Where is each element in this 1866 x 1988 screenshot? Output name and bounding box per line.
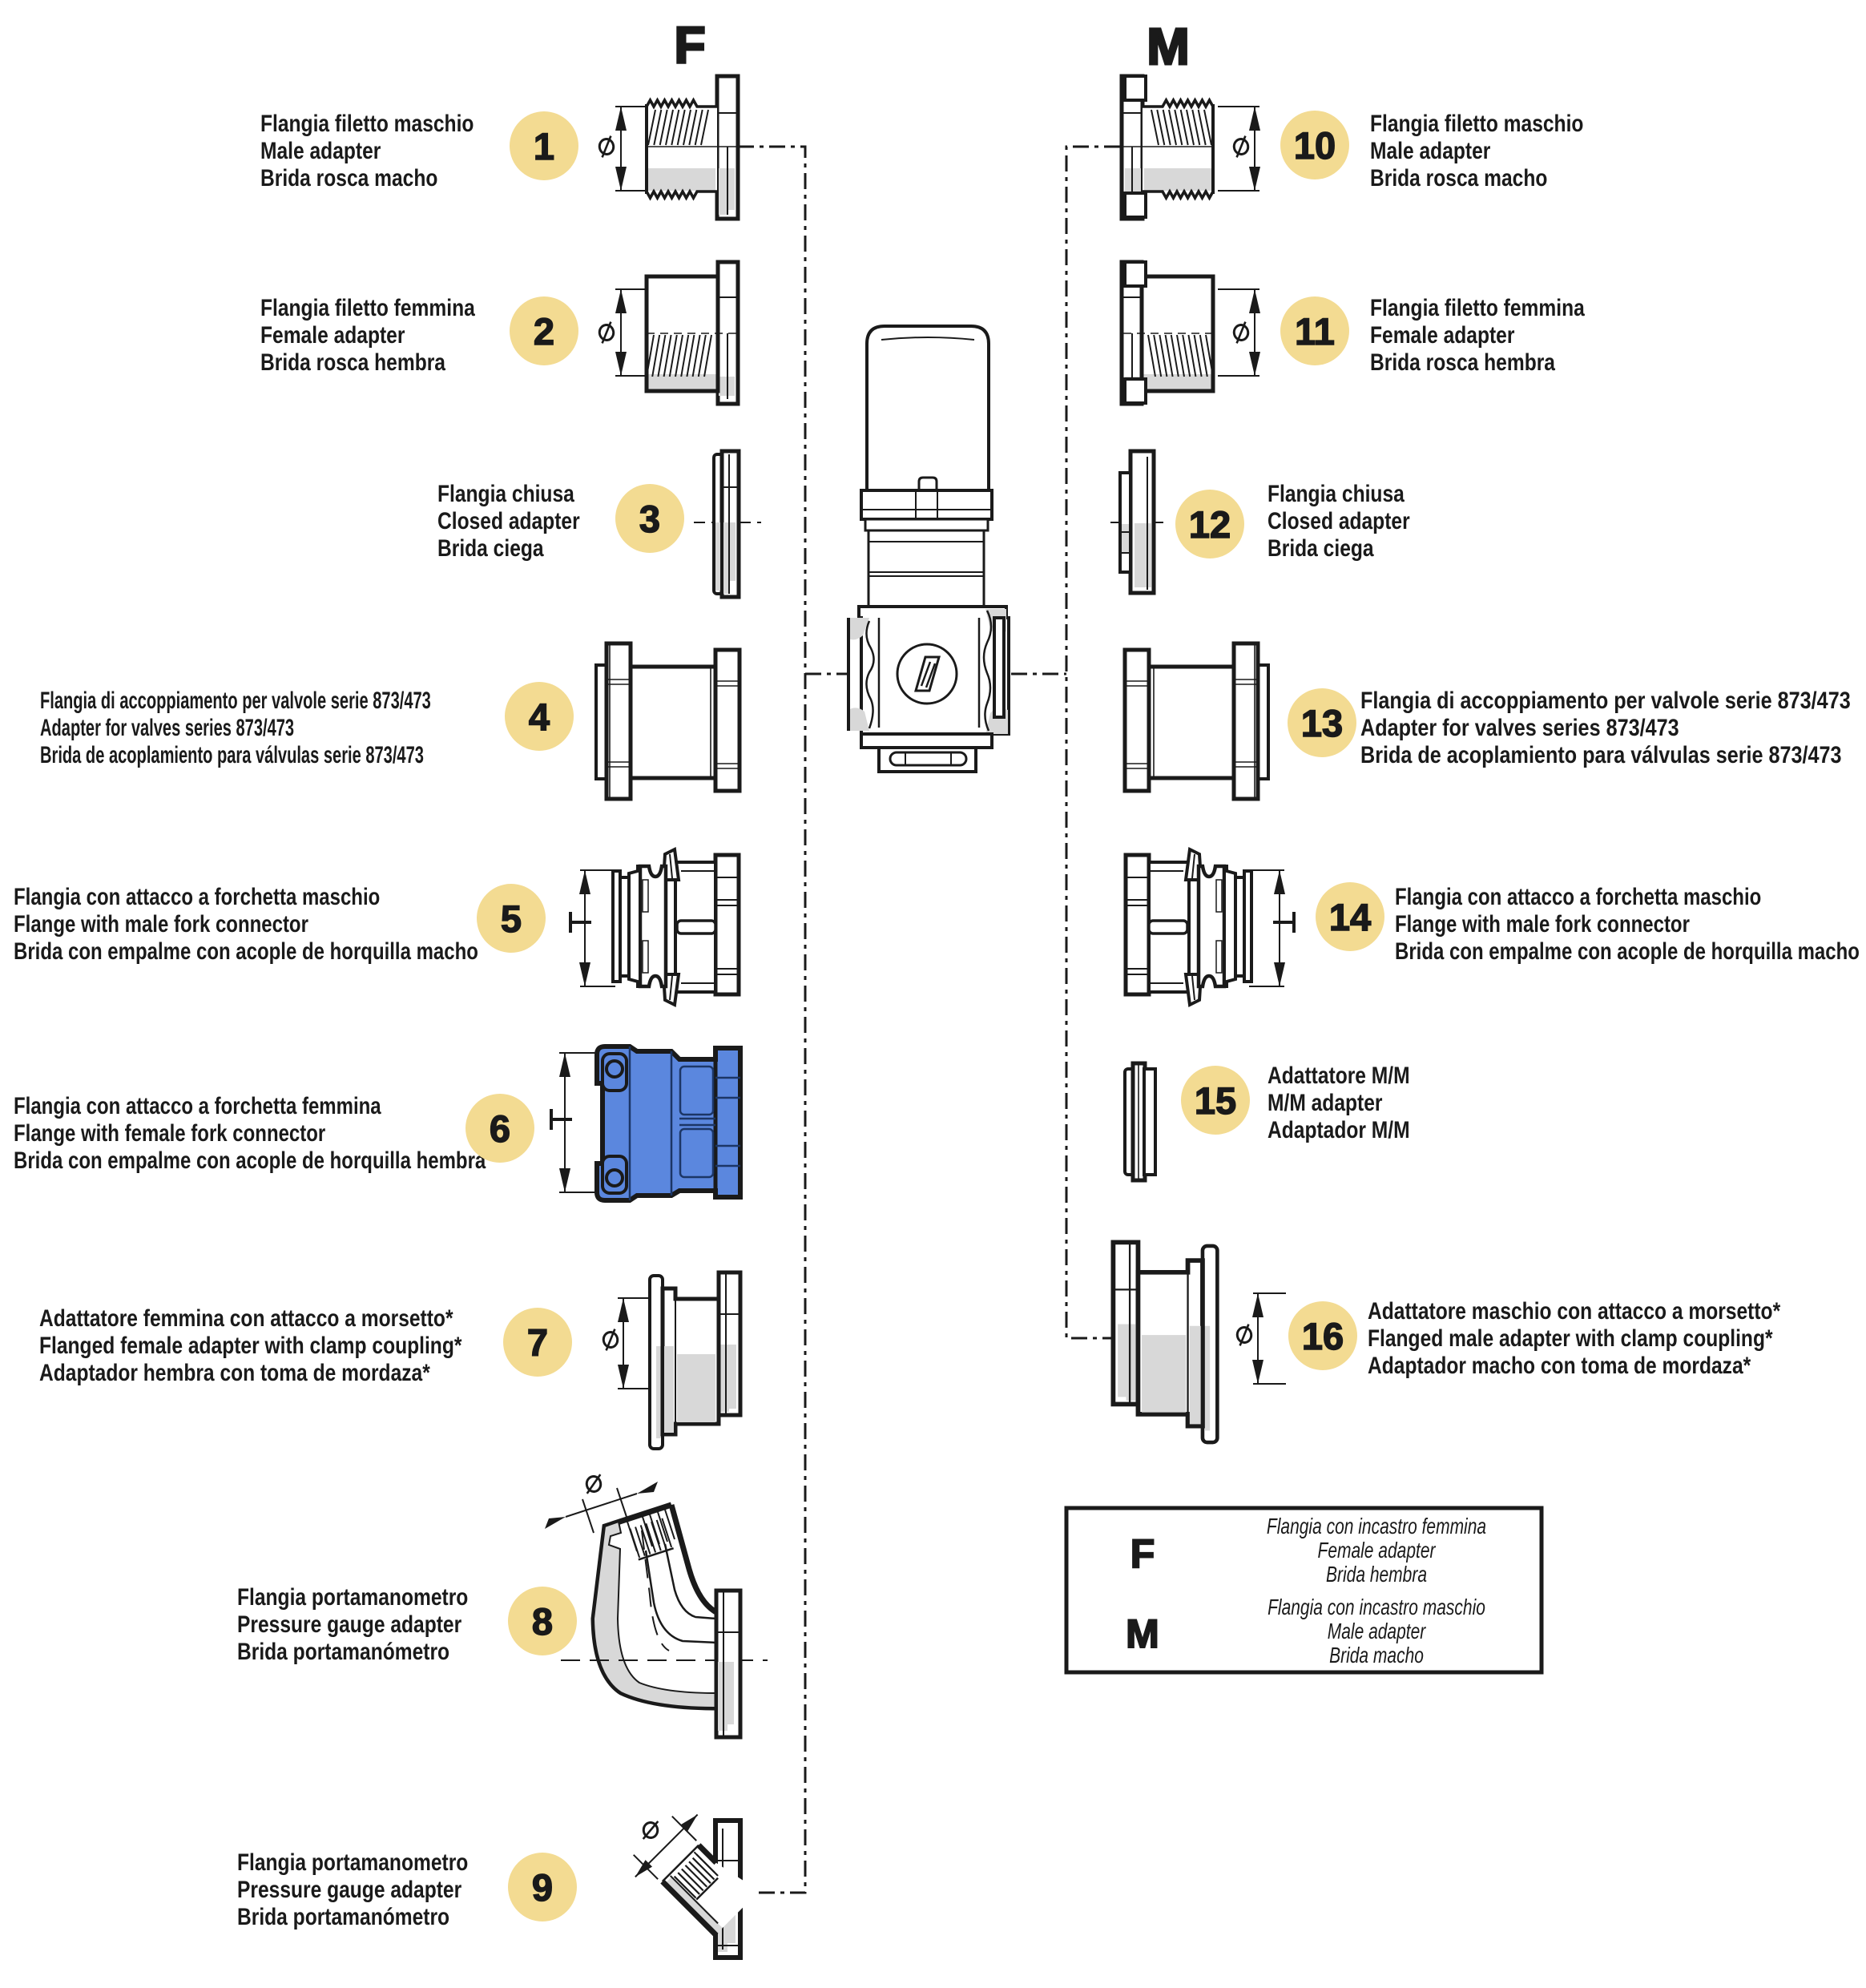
svg-text:Flanged female adapter with cl: Flanged female adapter with clamp coupli…: [39, 1332, 462, 1359]
svg-text:Flangia portamanometro: Flangia portamanometro: [237, 1849, 468, 1876]
svg-text:16: 16: [1302, 1315, 1344, 1357]
svg-text:Flangia portamanometro: Flangia portamanometro: [237, 1583, 468, 1611]
svg-text:Brida rosca hembra: Brida rosca hembra: [1370, 349, 1556, 376]
svg-text:4: 4: [529, 696, 550, 738]
svg-text:Flangia filetto femmina: Flangia filetto femmina: [1370, 294, 1585, 321]
svg-text:5: 5: [501, 897, 522, 940]
svg-text:Adaptador M/M: Adaptador M/M: [1268, 1116, 1410, 1143]
svg-text:M: M: [1147, 18, 1189, 75]
svg-text:Brida rosca macho: Brida rosca macho: [260, 164, 437, 192]
svg-text:Male adapter: Male adapter: [1370, 137, 1491, 164]
svg-text:Adapter for valves series 873/: Adapter for valves series 873/473: [1360, 714, 1679, 741]
svg-text:Flanged male adapter with clam: Flanged male adapter with clamp coupling…: [1368, 1325, 1773, 1352]
svg-text:Flangia filetto femmina: Flangia filetto femmina: [260, 294, 475, 321]
svg-text:Flangia di accoppiamento per v: Flangia di accoppiamento per valvole ser…: [1360, 687, 1851, 714]
svg-text:F: F: [1130, 1531, 1155, 1576]
svg-text:Pressure gauge adapter: Pressure gauge adapter: [237, 1611, 461, 1638]
svg-text:Brida macho: Brida macho: [1329, 1643, 1424, 1668]
svg-text:Flangia con attacco a forchett: Flangia con attacco a forchetta maschio: [1395, 882, 1761, 909]
svg-text:M/M adapter: M/M adapter: [1268, 1089, 1383, 1116]
svg-text:12: 12: [1189, 503, 1231, 546]
svg-text:Flange with male fork connecto: Flange with male fork connector: [1395, 909, 1690, 937]
svg-text:Flangia con incastro maschio: Flangia con incastro maschio: [1268, 1595, 1485, 1620]
svg-text:Brida rosca macho: Brida rosca macho: [1370, 164, 1547, 192]
svg-text:Brida portamanómetro: Brida portamanómetro: [237, 1903, 449, 1930]
svg-text:Brida rosca hembra: Brida rosca hembra: [260, 349, 446, 376]
svg-text:15: 15: [1195, 1079, 1236, 1122]
svg-text:Brida portamanómetro: Brida portamanómetro: [237, 1638, 449, 1665]
svg-text:Female adapter: Female adapter: [1370, 321, 1515, 349]
svg-text:Flange with male fork connecto: Flange with male fork connector: [14, 909, 308, 937]
svg-text:Flangia chiusa: Flangia chiusa: [1268, 480, 1405, 507]
svg-text:Flangia filetto maschio: Flangia filetto maschio: [260, 110, 474, 137]
svg-text:F: F: [674, 16, 705, 74]
svg-text:Adaptador macho con toma de mo: Adaptador macho con toma de mordaza*: [1368, 1352, 1751, 1379]
svg-text:Female adapter: Female adapter: [1317, 1538, 1436, 1563]
svg-text:Brida con empalme con acople d: Brida con empalme con acople de horquill…: [14, 1146, 486, 1173]
svg-text:Flangia con attacco a forchett: Flangia con attacco a forchetta maschio: [14, 882, 380, 909]
svg-text:3: 3: [639, 498, 660, 540]
svg-text:Flangia filetto maschio: Flangia filetto maschio: [1370, 110, 1583, 137]
svg-text:Flangia con attacco a forchett: Flangia con attacco a forchetta femmina: [14, 1091, 381, 1119]
svg-text:8: 8: [532, 1600, 553, 1643]
svg-text:1: 1: [534, 125, 554, 167]
svg-text:Flangia di accoppiamento per v: Flangia di accoppiamento per valvole ser…: [40, 688, 431, 714]
svg-text:Brida con empalme con acople d: Brida con empalme con acople de horquill…: [14, 937, 478, 964]
svg-text:Brida hembra: Brida hembra: [1326, 1563, 1427, 1587]
svg-text:Closed adapter: Closed adapter: [437, 507, 580, 534]
svg-text:Adattatore maschio con attacco: Adattatore maschio con attacco a morsett…: [1368, 1297, 1780, 1325]
svg-text:Brida de acoplamiento para vál: Brida de acoplamiento para válvulas seri…: [40, 742, 424, 768]
svg-text:14: 14: [1329, 896, 1371, 938]
svg-text:Male adapter: Male adapter: [1328, 1619, 1427, 1644]
svg-text:Adapter for valves series 873/: Adapter for valves series 873/473: [40, 715, 294, 741]
svg-text:Flangia chiusa: Flangia chiusa: [437, 480, 574, 507]
svg-text:Female adapter: Female adapter: [260, 321, 405, 349]
svg-text:9: 9: [532, 1866, 553, 1909]
svg-text:Flangia con incastro femmina: Flangia con incastro femmina: [1267, 1514, 1486, 1539]
svg-text:Male adapter: Male adapter: [260, 137, 381, 164]
svg-text:Adattatore M/M: Adattatore M/M: [1268, 1062, 1410, 1089]
svg-text:11: 11: [1295, 310, 1335, 353]
svg-text:Brida de acoplamiento para vál: Brida de acoplamiento para válvulas seri…: [1360, 741, 1842, 768]
svg-text:6: 6: [490, 1107, 510, 1150]
svg-text:7: 7: [527, 1321, 548, 1364]
svg-text:Brida ciega: Brida ciega: [1268, 534, 1374, 562]
svg-text:Brida ciega: Brida ciega: [437, 534, 544, 562]
svg-text:Flange with female fork connec: Flange with female fork connector: [14, 1119, 326, 1146]
svg-text:M: M: [1126, 1611, 1159, 1656]
svg-text:Adaptador hembra con toma de m: Adaptador hembra con toma de mordaza*: [39, 1359, 430, 1386]
svg-text:Closed adapter: Closed adapter: [1268, 507, 1410, 534]
svg-text:13: 13: [1301, 702, 1343, 744]
svg-text:Adattatore femmina con attacco: Adattatore femmina con attacco a morsett…: [39, 1304, 453, 1332]
svg-text:Brida con empalme con acople d: Brida con empalme con acople de horquill…: [1395, 937, 1860, 964]
svg-text:2: 2: [534, 310, 554, 353]
svg-text:Pressure gauge adapter: Pressure gauge adapter: [237, 1876, 461, 1903]
svg-text:10: 10: [1294, 124, 1336, 167]
